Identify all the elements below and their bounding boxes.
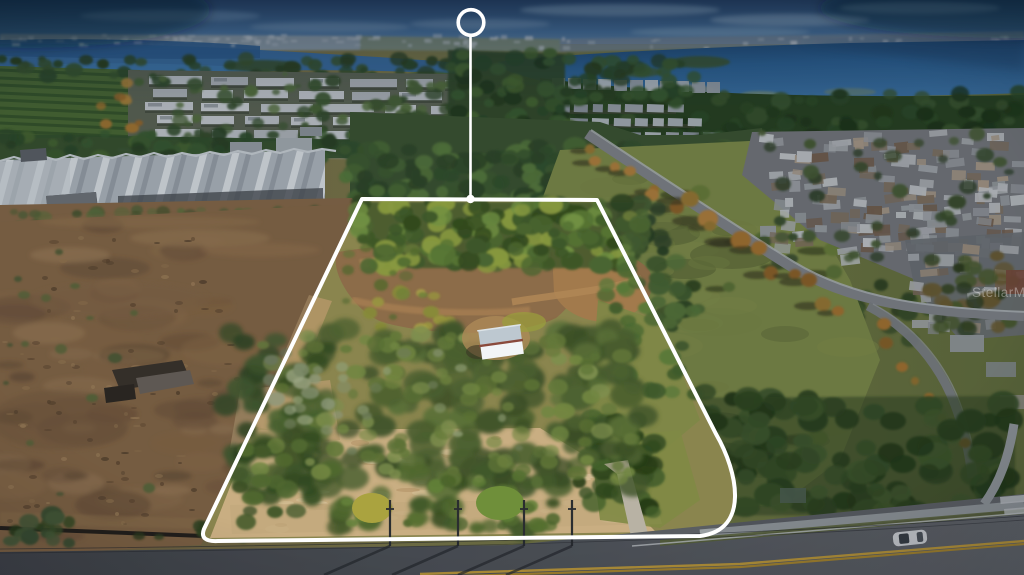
svg-text:StellarMLS: StellarMLS [972, 285, 1024, 300]
